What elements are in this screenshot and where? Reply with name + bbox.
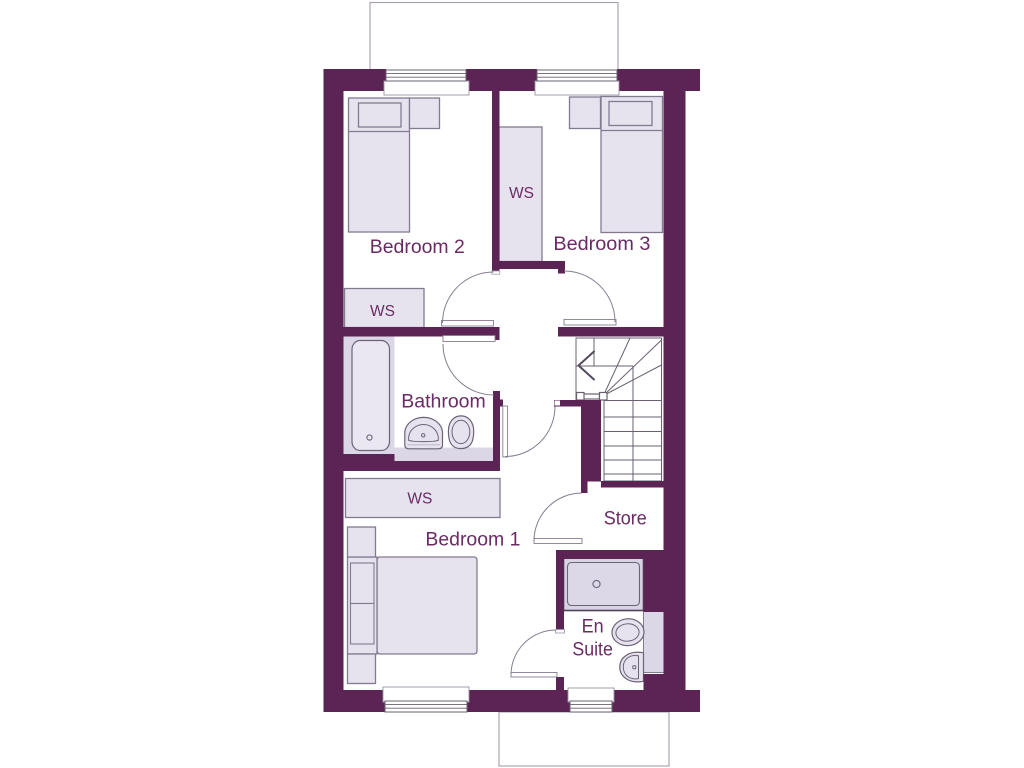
svg-text:Bedroom 1: Bedroom 1 — [425, 530, 520, 551]
svg-text:Bathroom: Bathroom — [401, 392, 486, 413]
svg-text:Suite: Suite — [572, 640, 613, 661]
svg-text:Bedroom 3: Bedroom 3 — [553, 234, 650, 255]
svg-text:WS: WS — [509, 185, 534, 202]
svg-text:Store: Store — [604, 509, 647, 530]
svg-text:WS: WS — [407, 491, 432, 508]
svg-text:WS: WS — [370, 303, 395, 320]
svg-text:Bedroom 2: Bedroom 2 — [370, 237, 465, 258]
svg-text:En: En — [582, 617, 604, 638]
